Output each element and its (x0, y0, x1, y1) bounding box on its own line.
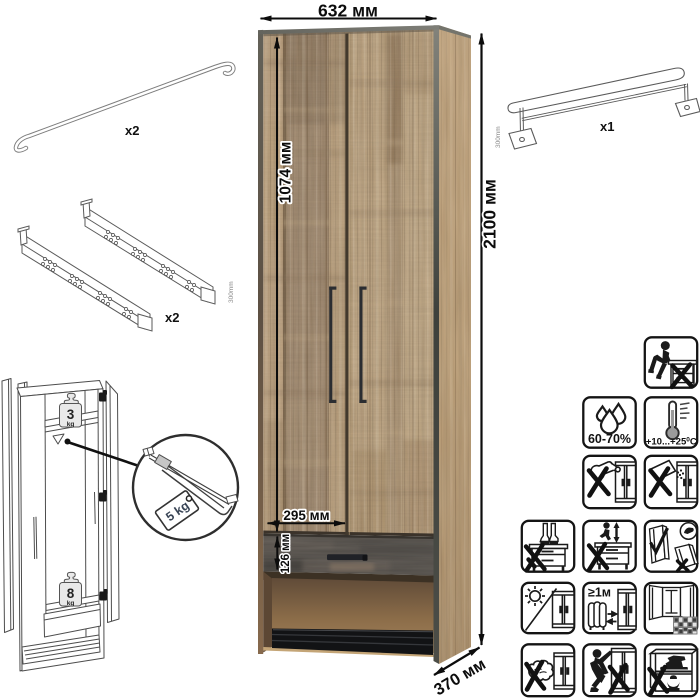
svg-text:295 мм: 295 мм (283, 508, 329, 523)
svg-text:2100 мм: 2100 мм (480, 179, 500, 249)
svg-text:x1: x1 (600, 119, 614, 134)
svg-text:126 мм: 126 мм (280, 534, 292, 573)
svg-text:8: 8 (67, 586, 75, 601)
svg-text:+10...+250С: +10...+250С (646, 437, 697, 448)
svg-text:kg: kg (67, 600, 75, 607)
svg-text:≥1м: ≥1м (588, 586, 611, 600)
svg-text:3: 3 (67, 407, 75, 422)
svg-text:1074 мм: 1074 мм (278, 142, 295, 204)
svg-text:60-70%: 60-70% (588, 432, 631, 446)
svg-text:kg: kg (67, 421, 75, 428)
svg-text:300mm: 300mm (228, 281, 235, 303)
svg-text:x2: x2 (125, 123, 139, 138)
svg-text:x2: x2 (165, 310, 179, 325)
svg-text:300mm: 300mm (495, 126, 502, 148)
